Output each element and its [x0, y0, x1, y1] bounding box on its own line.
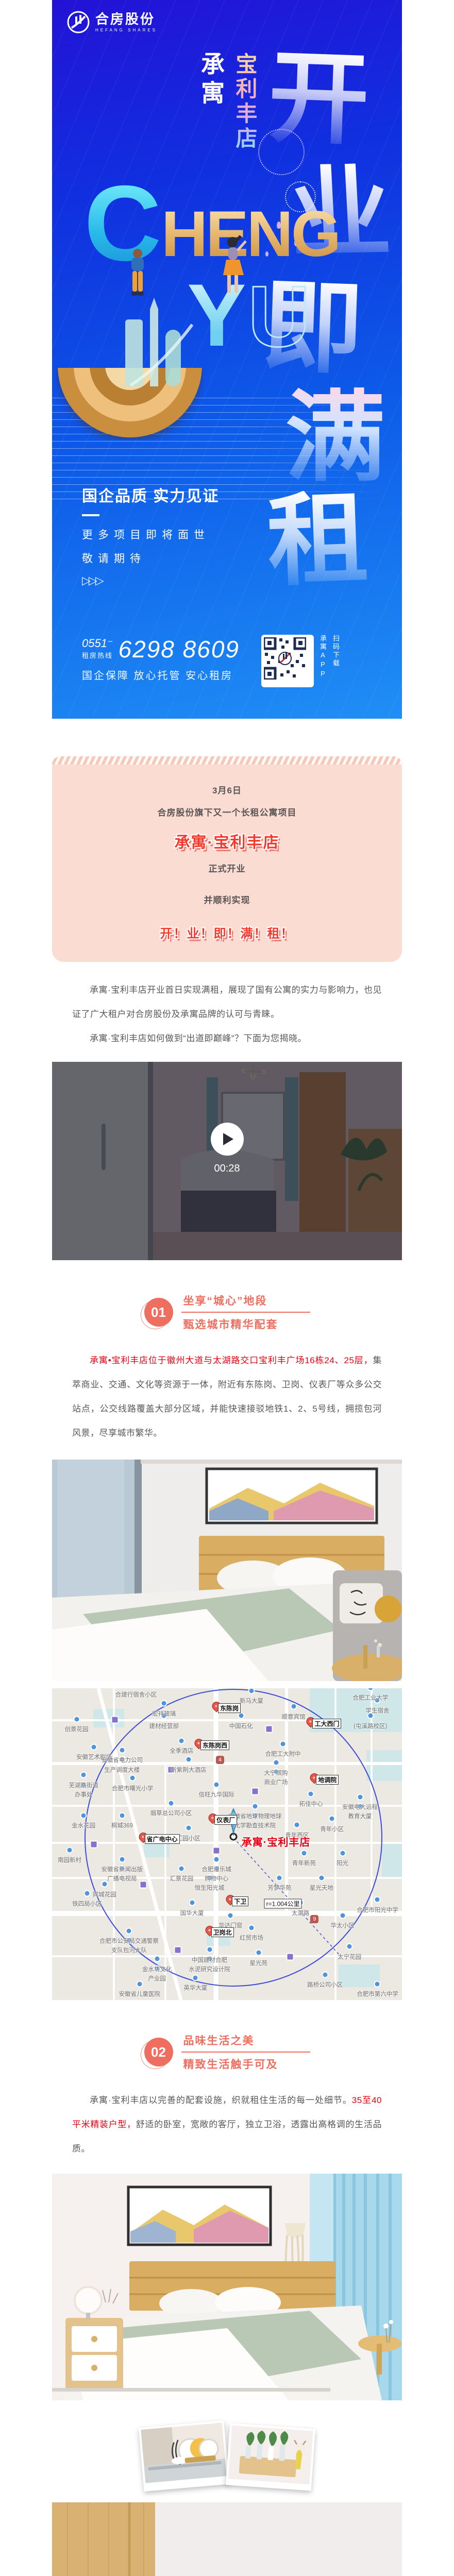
map-poi-label: 大宁缤购: [264, 1769, 288, 1777]
desk-shelf-photo: hello SUMMER: [52, 2502, 402, 2576]
fireworks-icon: [258, 129, 305, 175]
kitchen-dishes-photo: [141, 2422, 226, 2483]
banner-store-vertical: 宝利丰店: [229, 53, 261, 151]
hotline-label: 租房热线: [82, 650, 113, 660]
card-store-title: 承寓·宝利丰店: [62, 829, 392, 852]
map-poi-label: (屯溪路校区): [354, 1722, 387, 1730]
hero-banner: 合房股份 HEFANG SHARES 承寓 宝利丰店 开 业 即 满 租 C H…: [52, 0, 402, 719]
map-poi-label: 中国石化: [229, 1722, 253, 1730]
banner-hotline: 0551⁻ 租房热线 6298 8609 国企保障 放心托管 安心租房: [82, 638, 240, 682]
map-poi-icon: [300, 1850, 307, 1856]
map-poi-label: 顺意宾馆: [282, 1713, 306, 1721]
map-poi-icon: [206, 1946, 213, 1953]
map-pin-label: 省广电中心: [145, 1834, 180, 1844]
map-poi-label: 合肥工大附中: [265, 1750, 301, 1758]
map-poi-label: 新马大厦: [240, 1697, 263, 1705]
map-shop-icon: [139, 1881, 147, 1889]
map-poi-label: 合肥市曙光小学: [112, 1784, 154, 1792]
map-shop-icon: [111, 1716, 119, 1723]
map-shop-icon: [265, 1725, 273, 1733]
hotline-area-code: 0551⁻: [82, 638, 113, 649]
map-poi-icon: [227, 1912, 234, 1919]
map-shop-icon: [90, 1840, 98, 1848]
map-poi-label: 阳光: [337, 1859, 348, 1867]
map-poi-icon: [339, 1850, 346, 1856]
map-radius-label: r=1.004公里: [264, 1899, 302, 1908]
qr-side-text-scan: 扫码下载: [331, 635, 341, 687]
map-poi-icon: [189, 1900, 195, 1906]
map-shop-icon: [213, 1846, 221, 1854]
map-poi-icon: [73, 1716, 80, 1722]
map-pin-label: 卫岗北: [211, 1927, 234, 1937]
location-map: 承寓·宝利丰店 r=1.004公里 合建行宿舍小区新马大厦合肥工业大学学生宿舍(…: [52, 1688, 402, 2000]
map-poi-label: 太湖路: [292, 1909, 310, 1917]
section-title-line1: 坐享“城心”地段: [181, 1289, 310, 1312]
app-qr-code: [261, 635, 314, 687]
article-page: 合房股份 HEFANG SHARES 承寓 宝利丰店 开 业 即 满 租 C H…: [0, 0, 454, 2576]
map-poi-icon: [161, 1700, 167, 1707]
map-poi-icon: [346, 1943, 353, 1950]
map-poi-label: 合肥市公安局交通警察: [99, 1937, 159, 1945]
map-poi-icon: [273, 1759, 279, 1766]
detail-photos-gif: [52, 2424, 402, 2488]
location-paragraph: 承寓•宝利丰店位于徽州大道与太湖路交口宝利丰广场16栋24、25层，集萃商业、交…: [72, 1349, 382, 1445]
map-poi-label: 商业广场: [264, 1778, 288, 1786]
map-poi-icon: [80, 1812, 87, 1819]
map-poi-label: 铁四局小区: [72, 1900, 102, 1908]
map-poi-icon: [154, 1956, 160, 1962]
shelf-plants-photo: [228, 2425, 313, 2484]
section-title-line2: 精致生活触手可及: [181, 2053, 310, 2075]
map-shop-icon: [286, 1953, 294, 1960]
qr-code-block: 承寓APP 扫码下载: [261, 635, 388, 687]
map-poi-label: 合肥市第六中学: [357, 1990, 398, 1998]
map-poi-label: 烟草总公司小区: [150, 1809, 192, 1817]
slogan-title: 国企品质 实力见证: [82, 483, 219, 506]
map-pin-label: 下卫: [232, 1896, 248, 1906]
slogan-line2: 敬请期待: [82, 550, 219, 566]
map-poi-label: 安徽省新闻出版: [102, 1865, 143, 1873]
map-poi-label: 办事处: [75, 1790, 93, 1799]
map-poi-icon: [248, 1924, 255, 1931]
play-icon: [223, 1133, 233, 1145]
map-poi-icon: [119, 1747, 125, 1754]
card-line3: 正式开业: [62, 861, 392, 874]
map-poi-icon: [374, 1896, 381, 1903]
map-poi-icon: [357, 1793, 363, 1800]
map-poi-icon: [178, 1865, 185, 1872]
map-poi-icon: [290, 1703, 297, 1710]
video-play-button[interactable]: [211, 1123, 244, 1156]
room-tour-video[interactable]: 00:28: [52, 1062, 402, 1260]
map-poi-label: 支队包河大队: [111, 1946, 147, 1954]
map-poi-label: 合肥工业大学: [352, 1693, 388, 1702]
map-poi-label: 芳梦华苑: [267, 1884, 291, 1892]
map-poi-label: 安徽电大远程: [342, 1803, 378, 1811]
map-poi-icon: [374, 1980, 381, 1987]
map-pin-label: 东陈岗西: [200, 1740, 229, 1750]
section-number-badge: 02: [144, 2038, 173, 2066]
section-title-line2: 甄选城市精华配套: [181, 1313, 310, 1335]
banner-brand-vertical: 承寓: [194, 52, 228, 109]
map-poi-icon: [80, 1772, 87, 1778]
map-poi-label: 信旺九华国际: [199, 1790, 234, 1799]
card-date: 3月6日: [62, 783, 392, 796]
map-poi-icon: [294, 1822, 300, 1828]
letter-u: U: [248, 273, 310, 360]
bedroom-photo-2: [52, 2174, 402, 2400]
apartment-paragraph: 承寓·宝利丰店以完善的配套设施，织就租住生活的每一处细节。35至40平米精装户型…: [72, 2089, 382, 2161]
map-poi-label: 青年小区: [320, 1825, 344, 1833]
map-pin-label: 东陈岗: [218, 1703, 241, 1713]
map-poi-label: 学生宿舍: [365, 1706, 389, 1715]
map-poi-icon: [192, 1974, 199, 1981]
map-poi-icon: [238, 1713, 244, 1719]
map-pin-label: 仪表厂: [214, 1815, 237, 1825]
card-slogan: 开！业！即！满！租！: [62, 923, 392, 941]
section-number-badge: 01: [144, 1298, 173, 1327]
gif-frame-kitchen: [138, 2420, 229, 2492]
map-poi-label: 桐城369: [111, 1821, 133, 1829]
map-poi-label: 购物中心: [205, 1874, 228, 1883]
map-poi-icon: [276, 1875, 283, 1882]
video-overlay: [52, 1062, 402, 1260]
map-poi-icon: [329, 1816, 335, 1822]
map-poi-icon: [126, 1927, 132, 1934]
map-poi-label: 化学勘查技术院: [234, 1821, 276, 1829]
map-poi-label: 新紫荆大酒店: [171, 1766, 206, 1774]
map-poi-icon: [119, 1856, 125, 1862]
map-poi-label: 红贸市场: [240, 1934, 263, 1942]
map-poi-label: 产业园: [148, 1974, 166, 1982]
map-store-label: 承寓·宝利丰店: [242, 1834, 311, 1849]
map-poi-icon: [318, 1875, 325, 1882]
map-poi-icon: [280, 1740, 287, 1747]
hotline-subtitle: 国企保障 放心托管 安心租房: [82, 667, 240, 682]
map-poi-label: 汇园小区: [177, 1834, 200, 1842]
map-poi-label: 星光苑: [249, 1959, 267, 1967]
card-line4: 并顺利实现: [62, 893, 392, 906]
map-poi-label: 同城花园: [93, 1890, 116, 1899]
letters-heng: HENG: [161, 202, 339, 266]
map-poi-icon: [66, 1846, 73, 1853]
map-poi-icon: [136, 1980, 143, 1987]
map-poi-label: 星光天地: [310, 1884, 333, 1892]
map-poi-icon: [255, 1950, 262, 1956]
map-poi-icon: [339, 1912, 346, 1919]
section-header-01: 01 坐享“城心”地段 甄选城市精华配套: [52, 1289, 402, 1335]
map-shop-icon: [174, 1946, 182, 1954]
map-poi-label: 中国建材合肥: [192, 1956, 227, 1964]
slogan-line1: 更多项目即将面世: [82, 527, 219, 542]
map-poi-label: 广播电视局: [107, 1874, 137, 1883]
map-poi-label: 建材经营部: [149, 1722, 179, 1730]
logo-subtitle: HEFANG SHARES: [95, 28, 157, 32]
video-duration: 00:28: [214, 1163, 240, 1175]
map-poi-label: 拓佳中心: [299, 1800, 323, 1808]
map-pin-label: 地调院: [316, 1775, 339, 1785]
gif-frame-plants: [226, 2423, 315, 2490]
map-poi-icon: [308, 1790, 314, 1797]
map-poi-label: 路桥公司小区: [307, 1980, 343, 1989]
map-poi-icon: [129, 1775, 136, 1782]
section-title-line1: 品味生活之美: [181, 2029, 310, 2052]
announcement-card: 3月6日 合房股份旗下又一个长租公寓项目 承寓·宝利丰店 正式开业 并顺利实现 …: [52, 756, 402, 962]
map-poi-icon: [185, 1756, 192, 1763]
map-pin-label: 工大西门: [312, 1719, 341, 1728]
banner-slogan: 国企品质 实力见证 更多项目即将面世 敬请期待 ▷▷▷: [82, 483, 219, 587]
map-poi-label: 安徽省儿童医院: [119, 1990, 161, 1998]
qr-pattern-icon: [264, 637, 306, 680]
map-poi-label: 宏祥玻璃: [152, 1709, 176, 1718]
map-poi-label: 创景花园: [65, 1725, 89, 1733]
sitting-person-illustration: [124, 247, 151, 304]
map-shop-icon: [251, 1787, 259, 1795]
map-poi-label: 安徽省电力公司: [102, 1756, 143, 1764]
map-poi-label: 全季酒店: [170, 1747, 193, 1755]
map-poi-label: 国华大厦: [180, 1909, 204, 1917]
map-poi-icon: [83, 1890, 90, 1897]
intro-paragraph-2: 承寓·宝利丰店如何做到“出道即巅峰”？下面为您揭晓。: [72, 1027, 382, 1051]
map-poi-label: 生产调度大楼: [104, 1766, 140, 1774]
intro-paragraph-1: 承寓·宝利丰店开业首日实现满租，展现了国有公寓的实力与影响力，也见证了广大租户对…: [72, 978, 382, 1027]
triple-arrow-icon: ▷▷▷: [82, 574, 219, 587]
map-poi-icon: [322, 1971, 328, 1978]
map-poi-icon: [119, 1812, 125, 1819]
bedroom-photo-1: [52, 1460, 402, 1681]
map-poi-icon: [91, 1743, 97, 1750]
map-poi-label: 金水坊文化: [142, 1965, 172, 1973]
map-poi-label: 汇景花园: [170, 1874, 193, 1883]
map-poi-label: 南园新村: [58, 1856, 81, 1864]
hefang-logo-icon: [66, 10, 90, 34]
card-line2: 合房股份旗下又一个长租公寓项目: [62, 805, 392, 818]
map-poi-icon: [178, 1737, 185, 1744]
map-poi-label: 青年新苑: [292, 1859, 316, 1867]
logo-title: 合房股份: [95, 12, 157, 27]
map-poi-label: 合肥市阳光中学: [357, 1906, 398, 1914]
map-road-badge: 4: [216, 1756, 224, 1764]
map-poi-label: 恒生阳光城: [195, 1884, 225, 1892]
qr-side-text-app: 承寓APP: [318, 635, 328, 687]
map-poi-label: 教育大厦: [348, 1812, 372, 1820]
map-road-badge: 9: [310, 1915, 318, 1923]
map-poi-label: 合肥漫乐城: [201, 1865, 231, 1873]
map-poi-icon: [213, 1856, 220, 1862]
map-poi-icon: [167, 1800, 174, 1806]
map-poi-icon: [251, 1803, 258, 1809]
map-poi-icon: [213, 1781, 220, 1788]
slogan-divider: [82, 514, 99, 516]
map-poi-label: 水泥研究设计院: [189, 1965, 230, 1973]
chengyu-letters: C HENG Y U: [84, 170, 352, 376]
section-header-02: 02 品味生活之美 精致生活触手可及: [52, 2029, 402, 2075]
map-poi-label: 英华大厦: [183, 1984, 207, 1992]
map-poi-label: 太宁花园: [338, 1953, 361, 1961]
dancing-woman-illustration: [217, 235, 248, 302]
map-poi-icon: [185, 1825, 192, 1832]
hotline-number: 6298 8609: [119, 639, 240, 660]
map-poi-label: 芜湖路街道: [69, 1781, 98, 1789]
map-poi-label: 合建行宿舍小区: [115, 1690, 157, 1699]
map-poi-label: 金水花园: [72, 1821, 95, 1829]
brand-logo: 合房股份 HEFANG SHARES: [66, 10, 157, 34]
map-poi-label: 华太小区: [331, 1921, 355, 1929]
